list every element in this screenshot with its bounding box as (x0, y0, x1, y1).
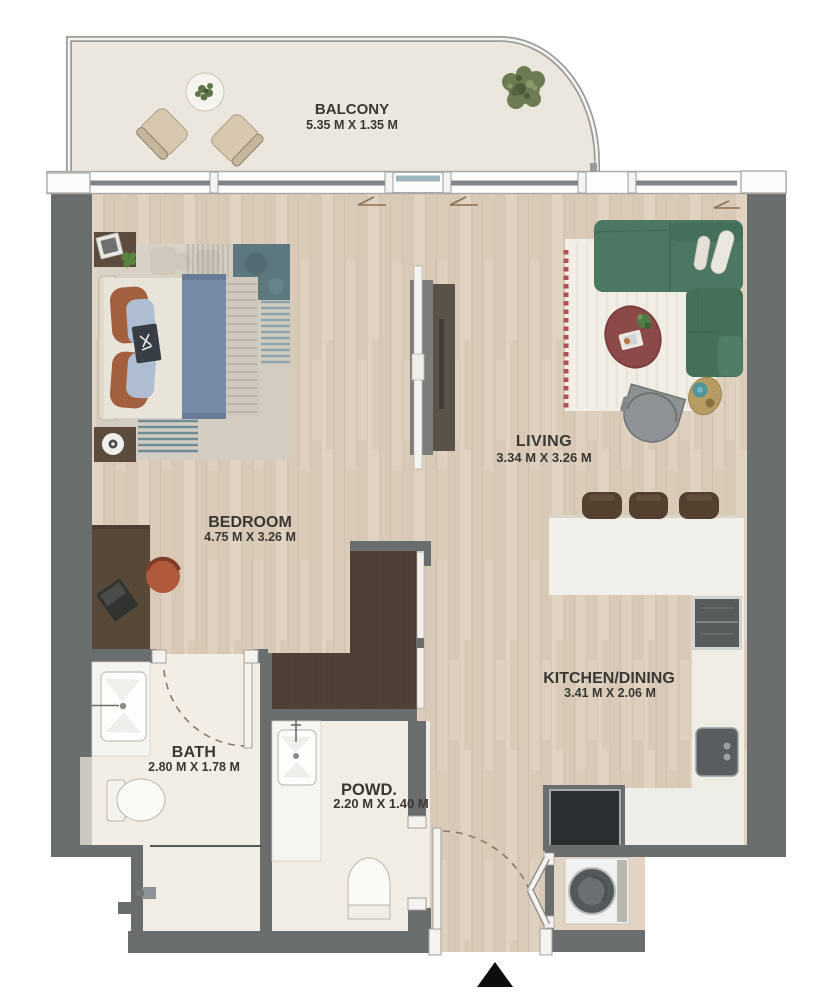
svg-text:3.41 M X 2.06 M: 3.41 M X 2.06 M (564, 686, 656, 700)
svg-text:BEDROOM: BEDROOM (208, 514, 292, 531)
svg-text:LIVING: LIVING (516, 433, 572, 450)
svg-text:3.34 M X 3.26 M: 3.34 M X 3.26 M (496, 450, 591, 465)
svg-text:5.35 M X 1.35 M: 5.35 M X 1.35 M (306, 118, 398, 132)
svg-text:2.20 M X 1.40 M: 2.20 M X 1.40 M (333, 796, 428, 811)
svg-text:BALCONY: BALCONY (315, 101, 389, 118)
svg-text:KITCHEN/DINING: KITCHEN/DINING (543, 670, 675, 687)
svg-text:2.80 M X 1.78 M: 2.80 M X 1.78 M (148, 760, 240, 774)
svg-text:BATH: BATH (172, 744, 216, 761)
svg-text:4.75 M X 3.26 M: 4.75 M X 3.26 M (204, 530, 296, 544)
